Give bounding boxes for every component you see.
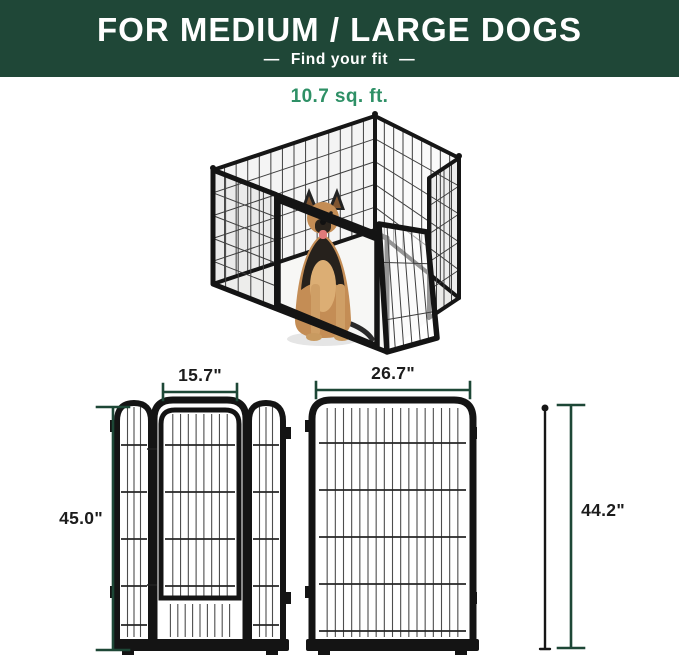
plain-panel-diagram (305, 400, 479, 655)
plain-panel-foot-right (455, 651, 467, 655)
rod-ball-top (542, 405, 549, 412)
connecting-rod-height-label: 44.2" (581, 500, 625, 520)
lug (284, 427, 291, 439)
dog-playpen-photo (183, 106, 505, 356)
finial-left (210, 165, 216, 171)
finial-back (372, 111, 378, 117)
lug (470, 592, 477, 604)
height-dim-44-2 (558, 405, 584, 648)
lug (305, 420, 312, 432)
door-panel-height-label: 45.0" (59, 508, 103, 528)
connecting-rod-diagram (540, 405, 550, 650)
subtitle-text: Find your fit (291, 51, 388, 69)
plain-panel-wires (319, 408, 466, 637)
plain-panel-foot-left (318, 651, 330, 655)
connecting-rod (540, 412, 550, 649)
door-panel-foot-right (266, 651, 278, 655)
door-panel-base (112, 639, 289, 651)
lug (305, 586, 312, 598)
plain-panel-base (306, 639, 479, 651)
dog-front-leg-left (311, 284, 320, 336)
subtitle-dash-left: — (264, 51, 280, 69)
header-subtitle: — Find your fit — (0, 51, 679, 69)
width-dim-26-7 (316, 382, 470, 398)
height-dim-45 (97, 407, 129, 650)
door-panel-width-label: 15.7" (178, 365, 222, 385)
plain-panel-width-label: 26.7" (371, 363, 415, 383)
product-infographic-page: FOR MEDIUM / LARGE DOGS — Find your fit … (0, 0, 679, 656)
dog-paw-left (306, 333, 322, 341)
page-title: FOR MEDIUM / LARGE DOGS (0, 0, 679, 48)
pen-area-label: 10.7 sq. ft. (0, 86, 679, 108)
header-banner: FOR MEDIUM / LARGE DOGS — Find your fit … (0, 0, 679, 77)
door-panel-foot-left (122, 651, 134, 655)
subtitle-dash-right: — (399, 51, 415, 69)
lug (284, 592, 291, 604)
finial-right (456, 153, 462, 159)
dog-tongue (319, 230, 327, 239)
door-panel-diagram (110, 400, 291, 655)
dimension-diagrams: 15.7" 26.7" 45.0" 44.2" (0, 360, 679, 656)
lug (470, 427, 477, 439)
door-panel-wires (121, 407, 279, 637)
